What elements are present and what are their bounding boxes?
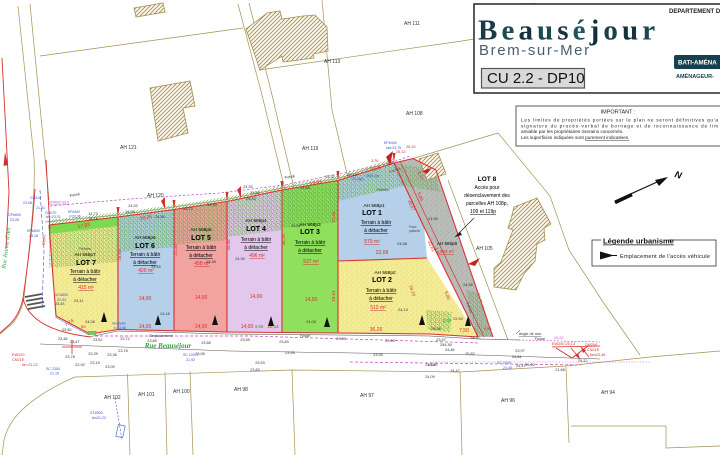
svg-text:18,54: 18,54 [331,290,336,302]
svg-text:AMÉNAGEUR-: AMÉNAGEUR- [676,72,714,80]
svg-text:415 m²: 415 m² [78,285,94,291]
svg-text:24,72: 24,72 [183,207,193,211]
svg-text:23,15: 23,15 [90,361,100,365]
svg-text:14,00: 14,00 [195,295,208,301]
svg-text:23,00: 23,00 [105,365,115,369]
svg-text:Légende urbanisme: Légende urbanisme [603,237,674,246]
svg-text:AH 568p3: AH 568p3 [299,222,321,228]
svg-text:21,92: 21,92 [186,358,195,362]
svg-text:Terrain à bâtir: Terrain à bâtir [70,269,101,275]
svg-text:AH 98: AH 98 [234,387,248,393]
svg-text:25,12: 25,12 [396,150,406,154]
svg-text:24,52: 24,52 [128,204,138,208]
svg-text:Terrain à bâtir: Terrain à bâtir [186,245,217,251]
svg-text:579 m²: 579 m² [364,239,380,245]
svg-text:CN21E: CN21E [587,348,600,352]
svg-text:24,09: 24,09 [425,375,435,379]
svg-text:LOT 4: LOT 4 [246,226,266,233]
svg-text:25,82: 25,82 [465,352,475,356]
svg-text:25,15: 25,15 [406,145,416,149]
svg-text:24,58: 24,58 [397,241,408,246]
svg-text:23,97: 23,97 [515,349,525,353]
svg-text:AH 113: AH 113 [324,59,341,65]
svg-text:SC 2205: SC 2205 [497,361,511,365]
svg-text:23,68: 23,68 [201,341,211,345]
svg-text:BN: BN [81,325,86,329]
svg-text:14,73: 14,73 [88,212,98,216]
svg-text:24,82: 24,82 [250,191,260,195]
svg-text:AH 121: AH 121 [120,145,137,151]
svg-text:254,36: 254,36 [440,343,452,347]
svg-text:3,86: 3,86 [255,324,264,329]
svg-text:Angle de mur: Angle de mur [519,332,542,336]
svg-text:CP#600: CP#600 [8,213,21,217]
svg-text:EP#600: EP#600 [27,229,40,233]
svg-text:ST#500: ST#500 [90,411,103,415]
svg-text:28,69: 28,69 [117,249,122,261]
svg-text:24,35: 24,35 [235,257,245,261]
svg-text:AH 568p8: AH 568p8 [437,241,458,246]
svg-text:ties23,48: ties23,48 [590,353,605,357]
svg-text:3,76: 3,76 [371,159,378,163]
svg-text:25,22: 25,22 [578,359,588,363]
svg-text:AH 568p2: AH 568p2 [374,270,396,276]
svg-text:24,12: 24,12 [398,307,409,312]
svg-text:21,39: 21,39 [428,363,438,367]
svg-text:24,08: 24,08 [431,327,441,331]
svg-text:24,22: 24,22 [554,336,564,340]
svg-text:512 m²: 512 m² [370,305,386,311]
svg-text:23,36: 23,36 [107,353,117,357]
svg-text:14,00: 14,00 [305,297,318,303]
svg-text:24,54: 24,54 [512,355,522,359]
svg-text:24,16: 24,16 [160,312,170,316]
svg-text:à détacher: à détacher [244,245,268,251]
svg-text:Les limites de propriétés port: Les limites de propriétés portées sur le… [521,118,718,123]
svg-text:24,92: 24,92 [243,185,253,189]
svg-text:2,00: 2,00 [443,318,452,323]
svg-text:23,50: 23,50 [62,328,72,332]
svg-text:Friches: Friches [377,188,389,192]
svg-text:25,32: 25,32 [325,175,335,179]
svg-text:AH 120: AH 120 [147,193,164,199]
svg-text:Brem-sur-Mer: Brem-sur-Mer [479,42,591,59]
svg-text:LOT 3: LOT 3 [300,229,320,236]
svg-text:23,18: 23,18 [29,234,38,238]
svg-text:Terrain à bâtir: Terrain à bâtir [130,252,161,258]
svg-text:14,00: 14,00 [139,324,152,330]
svg-text:à détacher: à détacher [189,253,213,259]
svg-text:25,22: 25,22 [525,363,535,367]
svg-text:AH 108: AH 108 [406,111,423,117]
svg-text:24,11: 24,11 [74,299,83,303]
svg-text:496 m²: 496 m² [249,253,265,259]
svg-text:23,95: 23,95 [373,353,383,357]
svg-text:23,83: 23,83 [279,340,289,344]
svg-text:AH 568p5: AH 568p5 [190,227,212,233]
svg-text:14,00: 14,00 [250,294,263,300]
svg-text:Fossé: Fossé [535,337,545,341]
svg-text:Vestiaire: Vestiaire [112,322,126,326]
svg-text:Rue Beauséjour: Rue Beauséjour [144,342,192,350]
svg-text:31,38: 31,38 [173,244,178,256]
svg-text:109 et 119p: 109 et 119p [470,209,496,215]
svg-text:AH 568p7: AH 568p7 [74,252,96,258]
svg-text:23,1(p): 23,1(p) [352,177,363,181]
svg-text:21,68: 21,68 [555,368,565,372]
svg-text:24,45: 24,45 [151,265,161,269]
svg-text:à détacher: à détacher [298,248,322,254]
svg-text:36,78: 36,78 [281,234,286,246]
svg-text:14,00: 14,00 [195,324,208,330]
svg-text:21,81: 21,81 [36,206,45,210]
svg-text:VC#800: VC#800 [55,293,68,297]
svg-text:22,68: 22,68 [376,250,389,256]
svg-text:r=23,36: r=23,36 [69,215,81,219]
svg-text:23,78: 23,78 [65,355,75,359]
svg-text:AH 105: AH 105 [476,246,493,252]
svg-text:AH 568p6: AH 568p6 [134,235,156,241]
svg-text:IMPORTANT :: IMPORTANT : [601,110,636,116]
svg-text:LOT 5: LOT 5 [191,235,211,242]
svg-text:bm21,22: bm21,22 [92,416,106,420]
svg-text:23,90: 23,90 [336,337,346,341]
svg-text:signature du procès-verbal de: signature du procès-verbal de bornage et… [521,124,718,129]
svg-text:14,18: 14,18 [88,217,98,221]
svg-text:6,99: 6,99 [484,327,491,331]
svg-text:24,38: 24,38 [206,260,216,264]
svg-text:Les superficies indiquées sont: Les superficies indiquées sont purement … [521,135,629,140]
svg-text:22,94: 22,94 [453,317,463,321]
svg-text:24,08: 24,08 [85,320,95,324]
svg-text:AH 568p4: AH 568p4 [245,218,267,224]
svg-text:14,00: 14,00 [241,324,254,330]
svg-text:tie=21,22: tie=21,22 [22,363,38,367]
svg-text:24,45: 24,45 [503,366,512,370]
svg-text:SC 2354: SC 2354 [46,367,60,371]
svg-text:AH 100: AH 100 [173,389,190,395]
svg-text:à détacher: à détacher [369,296,393,302]
svg-text:24,95: 24,95 [428,217,438,221]
svg-text:LOT 8: LOT 8 [478,176,497,183]
svg-text:7,50: 7,50 [459,328,469,334]
svg-text:Friches: Friches [79,247,91,251]
svg-text:LOT 1: LOT 1 [362,210,382,217]
svg-text:AH 119: AH 119 [302,146,319,152]
svg-text:AH 101: AH 101 [138,392,155,398]
svg-text:CU 2.2 - DP10: CU 2.2 - DP10 [487,70,585,87]
svg-text:SC 220-1: SC 220-1 [183,353,198,357]
svg-text:24,47: 24,47 [516,364,526,368]
svg-text:Terrain à bâtir: Terrain à bâtir [361,220,392,226]
svg-text:AH 97: AH 97 [360,393,374,399]
svg-text:33(5,1)e: 33(5,1)e [366,174,379,178]
svg-text:24,08: 24,08 [306,320,316,324]
svg-text:désenclavement des: désenclavement des [464,193,510,199]
svg-text:34,08: 34,08 [226,239,231,251]
svg-text:Terrain à bâtir: Terrain à bâtir [366,288,397,294]
svg-text:amiable par les propriétaires: amiable par les propriétaires riverains … [521,129,623,134]
svg-text:24,56: 24,56 [155,215,165,219]
svg-text:24,58: 24,58 [463,283,473,287]
svg-text:23,48: 23,48 [58,337,68,341]
svg-text:ter=23,76: ter=23,76 [46,215,61,219]
svg-text:24,63: 24,63 [246,197,256,201]
svg-text:LOT 6: LOT 6 [135,243,155,250]
svg-text:23,55: 23,55 [240,338,250,342]
svg-text:36,26: 36,26 [370,327,383,333]
svg-text:253 m²: 253 m² [440,249,455,254]
svg-text:21,44: 21,44 [331,211,336,223]
svg-text:23,76: 23,76 [118,349,128,353]
svg-text:23,39: 23,39 [88,352,98,356]
svg-text:24,50: 24,50 [207,203,217,207]
svg-text:t=23,58: t=23,58 [114,326,126,330]
svg-text:à détacher: à détacher [73,277,97,283]
svg-text:23,95: 23,95 [285,351,295,355]
svg-text:à détacher: à détacher [364,228,388,234]
svg-text:LOT 7: LOT 7 [76,260,96,267]
svg-text:23,26: 23,26 [10,218,19,222]
svg-text:24,22: 24,22 [470,336,480,340]
svg-text:23,08: 23,08 [23,201,32,205]
svg-text:EP#400: EP#400 [68,210,80,214]
svg-text:AH 94: AH 94 [601,390,615,396]
svg-text:Fossé: Fossé [300,334,310,338]
svg-text:23,93: 23,93 [255,361,265,365]
svg-text:23,97: 23,97 [436,338,446,342]
svg-text:21,15: 21,15 [50,372,59,376]
svg-text:23,65: 23,65 [147,339,157,343]
svg-text:23,43: 23,43 [55,302,65,306]
svg-text:23,83: 23,83 [250,368,260,372]
svg-text:95,41: 95,41 [41,234,47,245]
svg-text:EP#600 t23,5: EP#600 t23,5 [49,201,69,205]
svg-text:24,48: 24,48 [445,348,455,352]
svg-text:AH 111: AH 111 [404,21,420,27]
svg-text:Terrain à bâtir: Terrain à bâtir [295,240,326,246]
svg-text:Emplacement de l'accès véhicul: Emplacement de l'accès véhicule [620,254,710,260]
svg-text:23,47: 23,47 [70,340,80,344]
svg-text:CN410: CN410 [30,196,41,200]
svg-text:Emplacement: Emplacement [149,334,173,338]
svg-text:Accès pour: Accès pour [474,185,499,191]
svg-text:24,52: 24,52 [291,224,301,228]
svg-text:CN21E: CN21E [12,358,25,362]
svg-text:23,90: 23,90 [385,339,395,343]
svg-text:DEPARTEMENT D: DEPARTEMENT D [669,9,720,15]
svg-text:24,58: 24,58 [300,186,310,190]
svg-text:14,00: 14,00 [139,296,152,302]
svg-text:24,47: 24,47 [450,369,460,373]
svg-text:EW200 25,13: EW200 25,13 [552,342,575,346]
svg-text:24,90: 24,90 [125,210,135,214]
svg-text:22,92: 22,92 [75,363,85,367]
svg-text:palomb: palomb [409,229,420,233]
svg-text:AH 96: AH 96 [501,398,515,404]
svg-text:23,72: 23,72 [120,337,130,341]
svg-text:EW220: EW220 [12,353,24,357]
svg-text:parcelles AH 108p,: parcelles AH 108p, [466,201,508,207]
svg-text:Terrain à bâtir: Terrain à bâtir [241,237,272,243]
svg-text:23,52: 23,52 [93,338,103,342]
svg-text:EP#400: EP#400 [384,141,397,145]
svg-text:537 m²: 537 m² [303,259,319,265]
svg-text:BATI-AMÉNA: BATI-AMÉNA [678,59,717,67]
svg-text:LOT 2: LOT 2 [372,277,392,284]
svg-text:AH 568p1: AH 568p1 [363,203,385,209]
svg-text:AH 102: AH 102 [104,395,121,401]
